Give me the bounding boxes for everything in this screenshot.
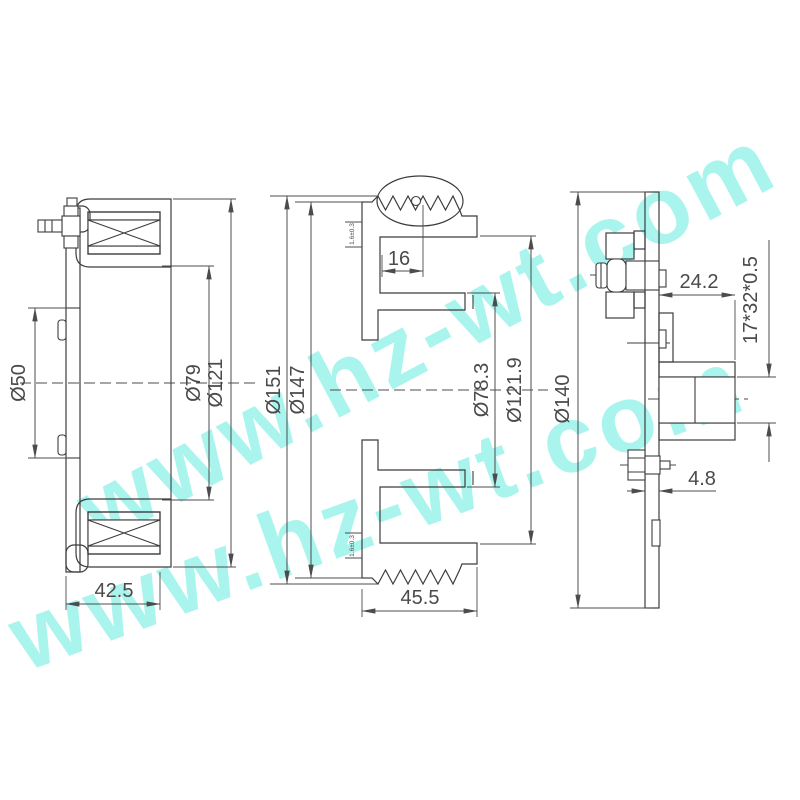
engineering-drawing: www.hz-wt.com www.hz-wt.com www.hz-wt.co… (0, 0, 800, 800)
plate-detent (58, 435, 66, 455)
dim-spline: 17*32*0.5 (740, 256, 762, 344)
connector-screw (67, 198, 77, 206)
dim-groove-note: 1.6±0.3 (349, 223, 356, 245)
plate-detent (58, 320, 66, 340)
dim-offset: 16 (388, 248, 410, 270)
wire-lead (38, 220, 62, 232)
connector-clip (64, 236, 78, 248)
detail-center-mark (412, 197, 421, 206)
stud-end (660, 461, 670, 469)
dim-d147: Ø147 (287, 366, 309, 415)
drawing-canvas: www.hz-wt.com www.hz-wt.com www.hz-wt.co… (0, 0, 800, 800)
dim-d151: Ø151 (263, 366, 285, 415)
spline-bore (659, 377, 735, 423)
dim-d121: Ø121 (205, 359, 227, 408)
damper-arm-bottom (634, 292, 645, 308)
connector-clip (64, 206, 78, 216)
dim-d50: Ø50 (8, 364, 30, 402)
bracket-groove (659, 330, 666, 348)
dim-depth: 24.2 (680, 271, 719, 293)
dim-d78-3: Ø78.3 (471, 363, 493, 417)
disc-pin-hole (645, 261, 659, 290)
dim-d140: Ø140 (552, 375, 574, 424)
pin-stub (659, 270, 666, 287)
dim-groove-note: 1.6±0.3 (349, 535, 356, 557)
disc-slot (652, 520, 660, 546)
dim-d79: Ø79 (183, 364, 205, 402)
coil-winding (88, 246, 160, 254)
dim-width: 45.5 (401, 587, 440, 609)
dim-d121-9: Ø121.9 (504, 357, 526, 423)
dim-width: 42.5 (95, 580, 134, 602)
coil-winding (88, 212, 160, 220)
connector-grommet (62, 216, 80, 236)
nut-hole (645, 456, 660, 474)
back-plate (66, 208, 80, 572)
dim-thickness: 4.8 (688, 468, 716, 490)
stop-nut (628, 450, 645, 480)
damper-pin (626, 261, 645, 290)
damper-spring (607, 259, 626, 292)
